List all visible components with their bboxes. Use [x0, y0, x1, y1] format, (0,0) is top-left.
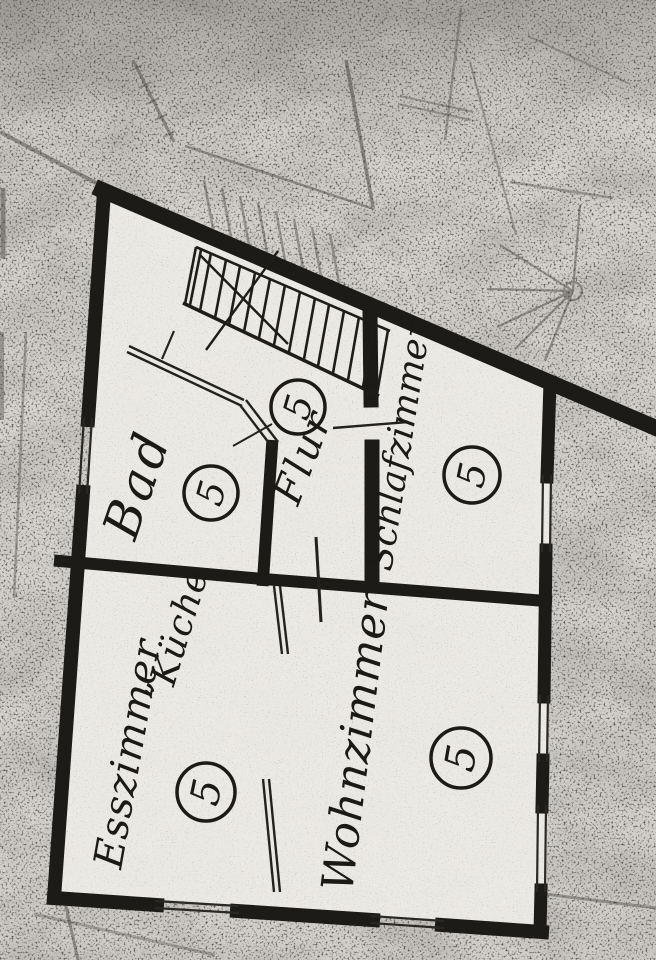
floorplan-svg: 5 5 5 5 5 Bad	[0, 0, 656, 960]
exterior-wall-bottom-c	[442, 925, 542, 932]
exterior-wall-right-d	[540, 890, 541, 932]
floorplan-scan: 5 5 5 5 5 Bad	[0, 0, 656, 960]
exterior-wall-bottom-b	[237, 911, 373, 920]
top-edge-shading	[0, 0, 656, 130]
exterior-wall-bottom-a	[54, 898, 157, 905]
wall-flur-schlafzimmer-upper	[370, 312, 371, 400]
exterior-wall-right-b	[544, 550, 546, 697]
exterior-wall-right-c	[542, 760, 543, 807]
exterior-wall-right-a	[547, 382, 550, 477]
